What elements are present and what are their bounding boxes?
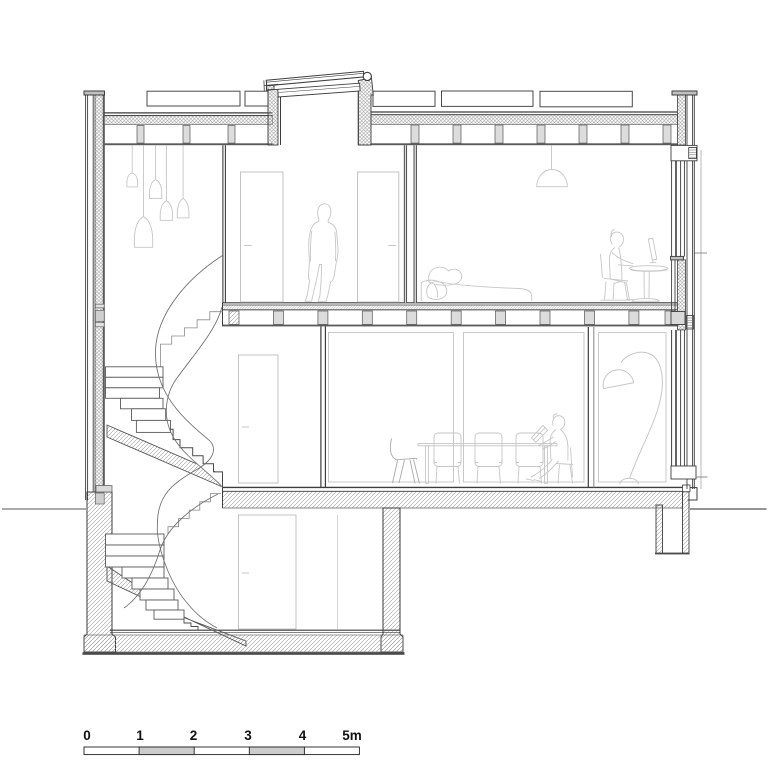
svg-text:2: 2 bbox=[190, 728, 198, 743]
svg-text:0: 0 bbox=[83, 728, 91, 743]
svg-text:5m: 5m bbox=[342, 728, 362, 743]
svg-text:3: 3 bbox=[244, 728, 252, 743]
svg-text:1: 1 bbox=[136, 728, 144, 743]
svg-text:4: 4 bbox=[299, 728, 307, 743]
